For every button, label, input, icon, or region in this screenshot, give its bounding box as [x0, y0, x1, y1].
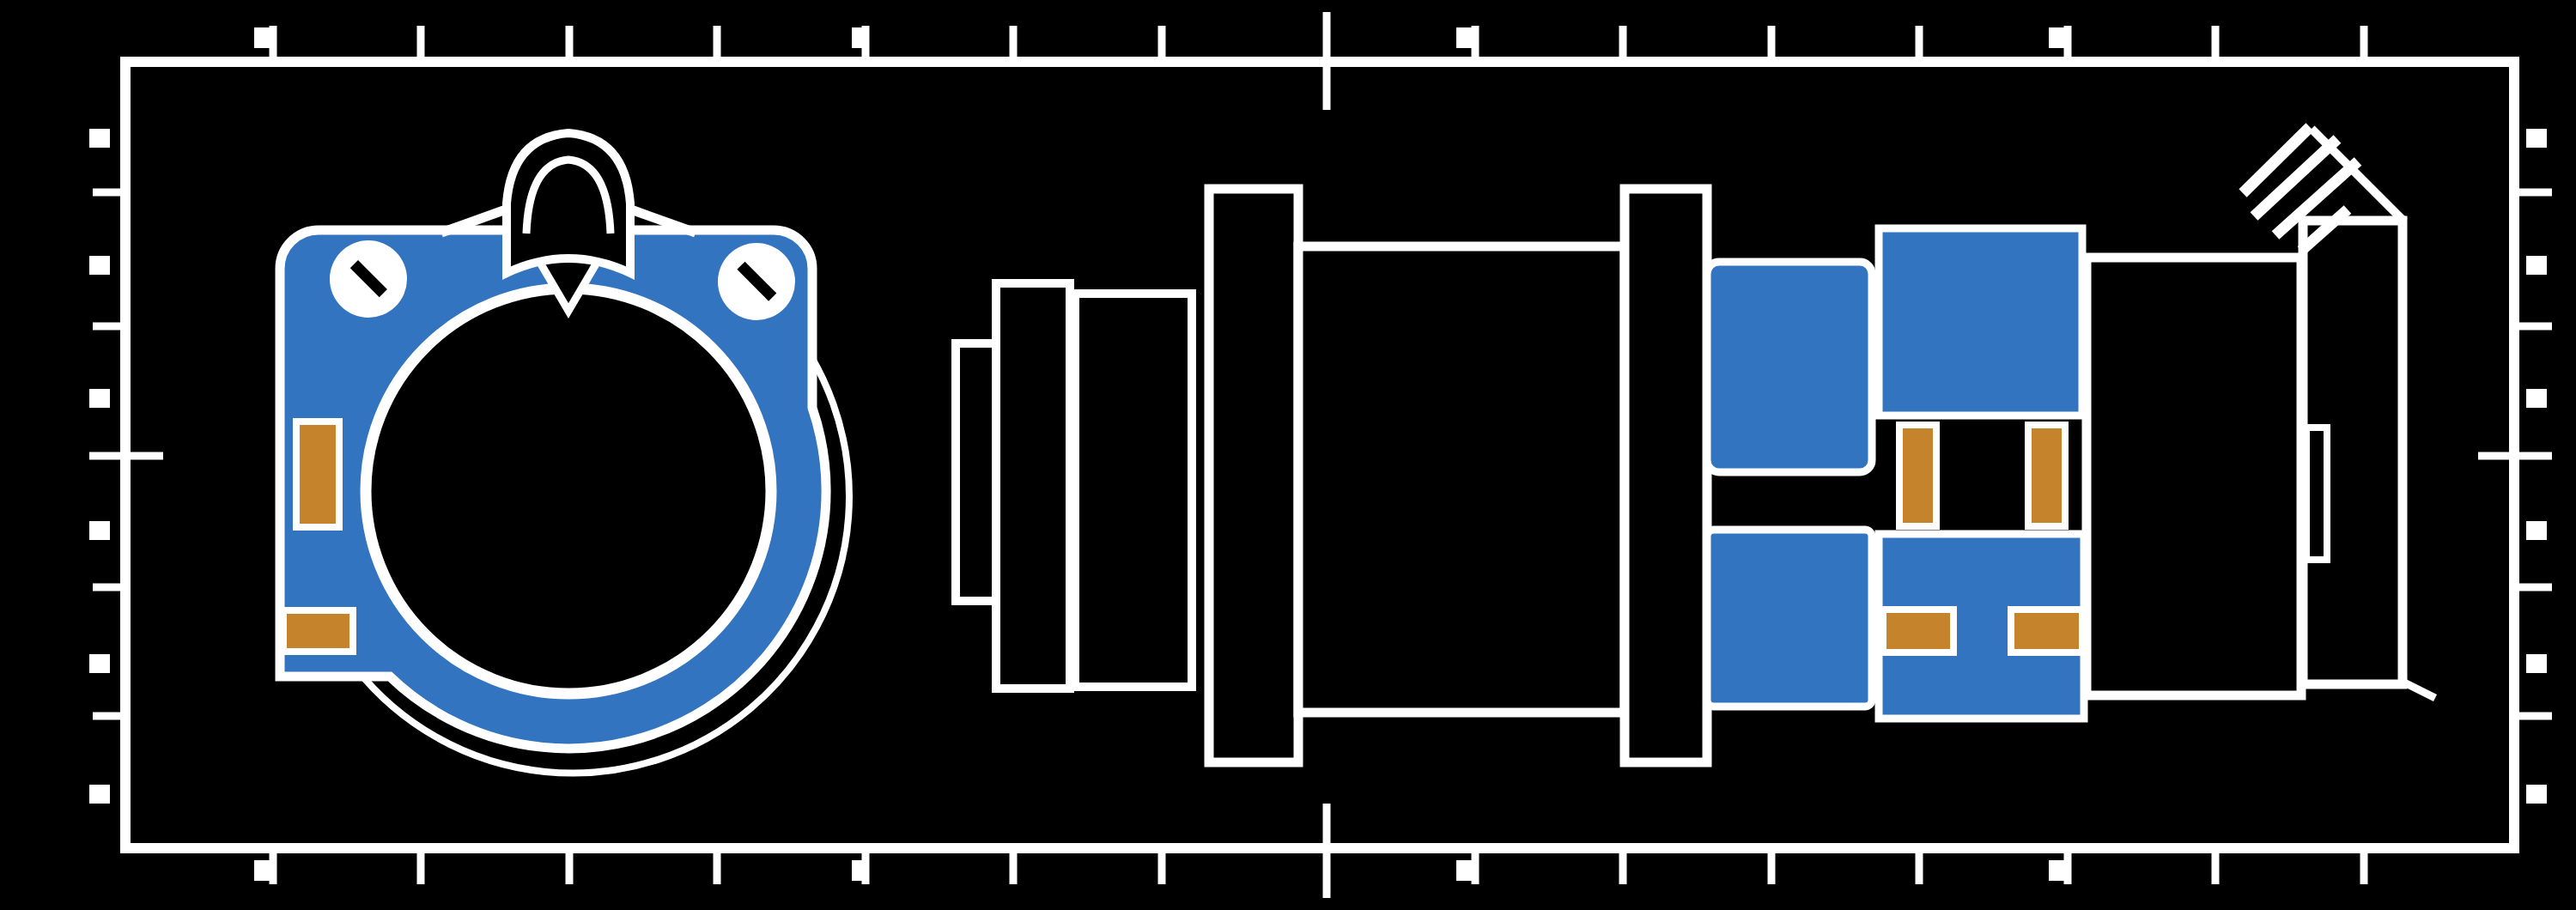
seal-insert-lower-2	[2011, 610, 2082, 652]
ruler-label-blob-top	[1456, 27, 1473, 48]
ruler-label-blob-left	[89, 389, 110, 408]
ruler-label-blob-top	[852, 27, 869, 48]
coupling-nut-upper-right	[1879, 228, 2082, 416]
ruler-label-blob-right	[2526, 521, 2547, 540]
ruler-label-blob-right	[2526, 654, 2547, 673]
ruler-label-blob-bottom	[2049, 860, 2066, 881]
gasket-segment-upper	[296, 422, 339, 527]
ruler-label-blob-right	[2526, 256, 2547, 275]
shell-bore	[366, 288, 771, 694]
rear-section-2	[1075, 294, 1192, 687]
ruler-label-blob-left	[89, 256, 110, 275]
coupling-barrel	[2087, 258, 2301, 695]
ruler-label-blob-left	[89, 129, 110, 148]
ruler-label-blob-right	[2526, 785, 2547, 804]
seal-insert-lower-1	[1883, 610, 1953, 652]
polarization-key-dome	[507, 133, 630, 273]
ruler-label-blob-right	[2526, 389, 2547, 408]
center-body	[1298, 246, 1625, 713]
seal-bar-upper-1	[1899, 425, 1936, 526]
ruler-label-blob-left	[89, 785, 110, 804]
front-keyway-slot	[2306, 428, 2327, 560]
coupling-nut-lower-left	[1707, 530, 1872, 707]
rear-section-1	[996, 283, 1070, 689]
technical-drawing-canvas	[0, 0, 2576, 910]
ruler-label-blob-bottom	[254, 860, 271, 881]
coupling-nut-upper-left	[1707, 262, 1872, 472]
rear-flange	[1209, 189, 1298, 762]
rear-stub	[956, 343, 997, 601]
front-flange	[1625, 189, 1707, 762]
seal-bar-upper-2	[2028, 425, 2065, 526]
ruler-label-blob-top	[2049, 27, 2066, 48]
ruler-label-blob-bottom	[852, 860, 869, 881]
ruler-label-blob-left	[89, 521, 110, 540]
ruler-label-blob-top	[254, 27, 271, 48]
ruler-label-blob-left	[89, 654, 110, 673]
technical-drawing-page	[0, 0, 2576, 910]
gasket-segment-lower	[283, 610, 353, 652]
ruler-label-blob-right	[2526, 129, 2547, 148]
ruler-label-blob-bottom	[1456, 860, 1473, 881]
